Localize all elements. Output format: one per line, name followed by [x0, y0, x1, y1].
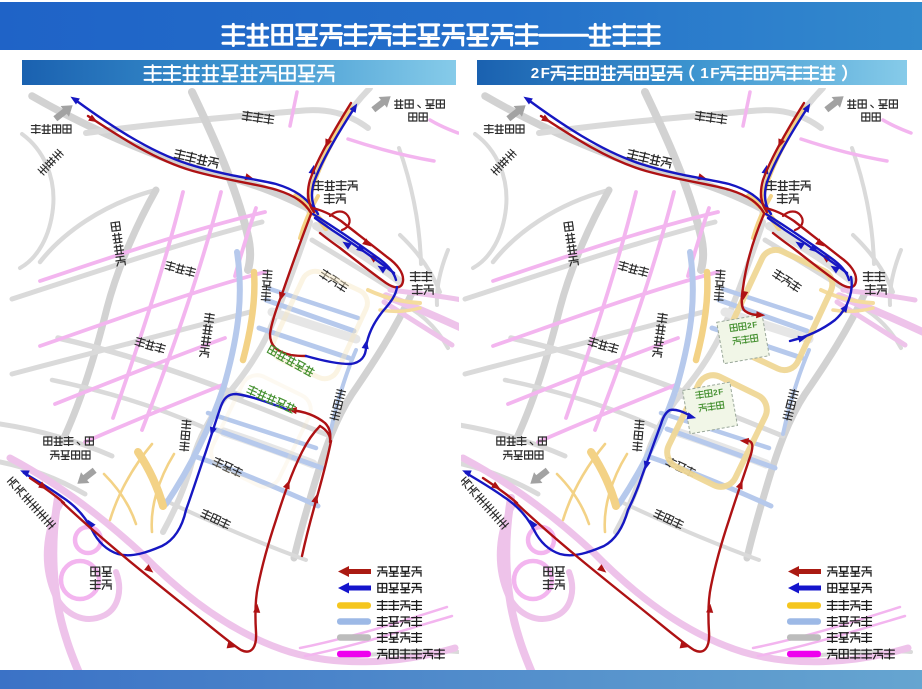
svg-text:F: F: [710, 65, 719, 82]
svg-text:F: F: [541, 65, 550, 82]
svg-text:1: 1: [700, 65, 709, 82]
svg-text:2: 2: [531, 65, 539, 82]
